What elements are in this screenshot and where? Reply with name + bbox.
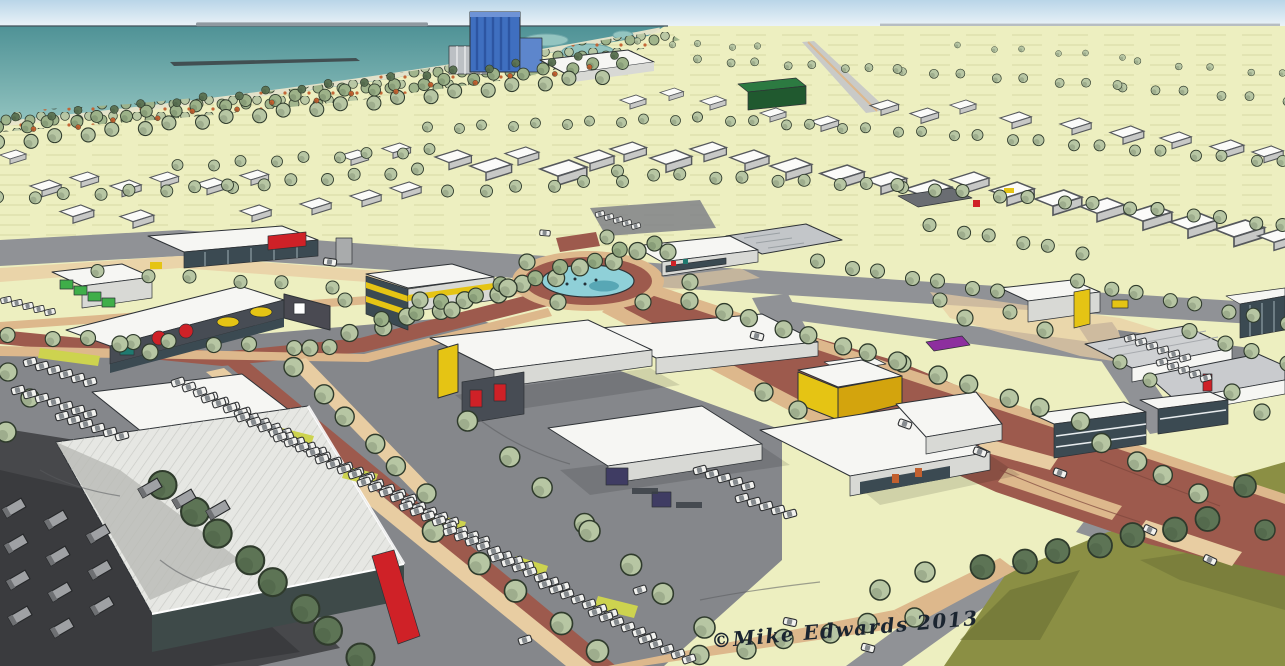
tree — [142, 270, 155, 283]
tree — [891, 179, 904, 192]
tree — [458, 411, 478, 431]
tree — [1222, 305, 1236, 319]
tree — [509, 122, 519, 132]
tree — [423, 72, 431, 80]
tree — [74, 106, 82, 114]
tree — [1179, 86, 1188, 95]
tree — [45, 332, 60, 347]
tree — [417, 484, 436, 503]
tree — [894, 127, 904, 137]
tree — [1188, 297, 1202, 311]
tree — [694, 55, 702, 63]
tree — [91, 110, 103, 122]
tree — [972, 130, 983, 141]
tree — [29, 192, 41, 204]
tree — [612, 242, 627, 257]
tree — [142, 344, 158, 360]
tree — [369, 84, 381, 96]
tree — [1187, 209, 1200, 222]
tree — [956, 69, 965, 78]
tree — [1120, 55, 1126, 61]
tree — [48, 112, 56, 120]
tree — [1151, 203, 1164, 216]
tree — [234, 275, 247, 288]
tree — [110, 118, 115, 123]
tree — [578, 175, 590, 187]
green-sign — [74, 286, 87, 295]
tree — [275, 276, 288, 289]
tree — [1059, 196, 1072, 209]
tree — [499, 279, 517, 297]
tree — [219, 109, 233, 123]
tree — [846, 262, 860, 276]
office-annex — [336, 238, 352, 264]
tree — [648, 169, 660, 181]
green-sign — [88, 292, 101, 301]
tree — [694, 40, 700, 46]
tree — [800, 327, 817, 344]
tree — [600, 230, 614, 244]
tree — [485, 65, 493, 73]
tree — [929, 366, 947, 384]
tree — [1276, 219, 1285, 232]
tree — [412, 292, 428, 308]
tree — [449, 66, 457, 74]
tree — [587, 640, 609, 662]
red-sign — [179, 324, 193, 338]
tree — [302, 340, 318, 356]
tree — [428, 82, 433, 87]
tree — [865, 64, 873, 72]
tree — [291, 595, 319, 623]
tree — [366, 434, 385, 453]
tree — [1088, 534, 1112, 558]
tree — [1072, 413, 1090, 431]
tree — [755, 383, 773, 401]
tree — [1277, 156, 1285, 167]
tree — [262, 86, 270, 94]
tree — [442, 185, 454, 197]
tree — [12, 113, 20, 121]
tree — [639, 114, 649, 124]
yellow-sign — [1112, 300, 1128, 308]
tree — [519, 254, 535, 270]
tree — [222, 179, 234, 191]
tree — [183, 270, 196, 283]
tree — [579, 521, 600, 542]
tree — [333, 97, 347, 111]
tree — [1003, 305, 1017, 319]
tree — [1191, 150, 1202, 161]
tree — [189, 181, 201, 193]
tree — [1019, 74, 1028, 83]
tree — [834, 178, 846, 190]
tree — [468, 288, 483, 303]
tree — [915, 562, 935, 582]
tree — [57, 188, 69, 200]
tree — [387, 73, 395, 81]
tree — [736, 171, 748, 183]
tree — [1019, 46, 1025, 52]
tree — [1214, 211, 1227, 224]
tree — [550, 294, 566, 310]
car — [323, 258, 337, 267]
yellow-sign — [217, 317, 239, 327]
tree — [123, 184, 135, 196]
tree — [538, 77, 552, 91]
tree — [360, 78, 368, 86]
tree — [341, 325, 358, 342]
tree — [1255, 520, 1275, 540]
tree — [21, 121, 33, 133]
tree — [811, 254, 825, 268]
tree — [553, 260, 568, 275]
tree — [647, 236, 662, 251]
tree — [1013, 550, 1037, 574]
tree — [338, 293, 352, 307]
car — [540, 230, 551, 236]
tree — [298, 152, 309, 163]
tree — [754, 43, 760, 49]
tree — [838, 124, 848, 134]
tree — [1244, 344, 1259, 359]
tree — [871, 264, 885, 278]
tree — [1175, 63, 1182, 70]
tree — [751, 58, 759, 66]
tree — [1046, 539, 1070, 563]
tree — [173, 99, 181, 107]
tree — [0, 363, 17, 381]
tree — [242, 337, 257, 352]
tree — [1055, 78, 1064, 87]
tree — [740, 310, 757, 327]
tree — [473, 80, 478, 85]
tree — [958, 226, 971, 239]
tree — [276, 103, 290, 117]
tree — [517, 68, 529, 80]
tree — [424, 90, 438, 104]
tree — [322, 340, 337, 355]
tree — [893, 65, 902, 74]
tree — [81, 128, 95, 142]
tree — [1041, 239, 1054, 252]
tree — [319, 89, 331, 101]
tree — [95, 188, 107, 200]
tree — [1129, 285, 1143, 299]
red-sign — [470, 390, 482, 407]
navy-sign — [652, 492, 671, 507]
tree — [1056, 51, 1062, 57]
tree — [386, 457, 405, 476]
tree — [682, 274, 698, 290]
tree — [438, 73, 450, 85]
tree — [1245, 92, 1254, 101]
tree — [956, 185, 969, 198]
tree — [199, 93, 207, 101]
tree — [162, 116, 176, 130]
green-sign — [60, 280, 73, 289]
tree — [716, 304, 733, 321]
tree — [957, 310, 973, 326]
tree — [693, 112, 703, 122]
tree — [681, 293, 698, 310]
tree — [0, 422, 16, 442]
red-sign — [494, 384, 506, 401]
tree — [669, 42, 675, 48]
tree — [322, 174, 334, 186]
tree — [1094, 140, 1105, 151]
tree — [310, 102, 324, 116]
tree — [1248, 69, 1255, 76]
tree — [1086, 197, 1099, 210]
tree — [1217, 91, 1226, 100]
tree — [1069, 140, 1080, 151]
tree — [992, 47, 998, 53]
tree — [671, 116, 681, 126]
tree — [510, 180, 522, 192]
orange-accent — [915, 468, 922, 477]
tree — [1105, 282, 1119, 296]
tree — [424, 144, 435, 155]
tree — [137, 100, 145, 108]
tree — [505, 580, 527, 602]
tree — [347, 644, 375, 666]
tree — [917, 126, 927, 136]
tree — [138, 122, 152, 136]
tree — [500, 447, 520, 467]
tree — [621, 554, 642, 575]
tree — [1083, 50, 1089, 56]
tree — [617, 58, 629, 70]
tree — [929, 184, 942, 197]
tree — [1163, 294, 1177, 308]
tree — [1246, 308, 1260, 322]
tree — [477, 120, 487, 130]
tree — [236, 546, 264, 574]
tree — [1250, 217, 1263, 230]
tree — [269, 100, 274, 105]
tree — [349, 91, 354, 96]
tree — [253, 109, 267, 123]
tree — [505, 78, 519, 92]
tree — [635, 294, 651, 310]
tree — [710, 172, 722, 184]
duck — [566, 283, 569, 286]
tree — [1121, 523, 1145, 547]
tree — [531, 118, 541, 128]
tree — [1163, 518, 1187, 542]
tree — [326, 281, 339, 294]
tree — [444, 302, 460, 318]
tree — [574, 52, 582, 60]
tree — [1252, 155, 1263, 166]
yellow-corner-tower — [438, 344, 458, 398]
tree — [528, 271, 543, 286]
tree — [611, 52, 619, 60]
tree — [749, 116, 759, 126]
tree — [931, 274, 945, 288]
tree — [258, 179, 270, 191]
tree — [551, 613, 573, 635]
tree — [285, 174, 297, 186]
tree — [172, 160, 183, 171]
tree — [1092, 434, 1111, 453]
tree — [971, 555, 995, 579]
tree — [155, 116, 160, 121]
yellow-sign — [150, 262, 162, 269]
tree — [367, 96, 381, 110]
tree — [1017, 237, 1030, 250]
masterplan-drawing: ©Mike Edwards 2013 — [0, 0, 1285, 666]
tree — [1134, 58, 1141, 65]
tree — [105, 122, 119, 136]
shopfront-sign — [683, 259, 688, 264]
canopy-bench — [632, 488, 658, 494]
tree — [423, 122, 433, 132]
tree — [1033, 135, 1044, 146]
tree — [24, 134, 38, 148]
tree — [784, 62, 792, 70]
tree — [634, 38, 640, 44]
tree — [1071, 274, 1085, 288]
tree — [507, 73, 512, 78]
tree — [1113, 355, 1127, 369]
tree — [923, 219, 936, 232]
tree — [861, 123, 871, 133]
tree — [571, 259, 588, 276]
tree — [841, 65, 849, 73]
tree — [315, 385, 334, 404]
orange-accent — [892, 474, 899, 483]
tree — [324, 79, 332, 87]
tree — [835, 338, 852, 355]
tree — [481, 185, 493, 197]
tree — [481, 83, 495, 97]
duck — [584, 283, 587, 286]
tree — [298, 85, 306, 93]
tree — [190, 109, 195, 114]
tree — [727, 59, 735, 67]
tree — [76, 124, 81, 129]
tree — [161, 334, 176, 349]
tree — [782, 120, 792, 130]
tree — [361, 148, 372, 159]
tree — [234, 107, 239, 112]
tree — [31, 126, 36, 131]
tree — [660, 244, 676, 260]
tree — [161, 185, 173, 197]
tree — [1196, 507, 1220, 531]
distant-headland — [196, 22, 428, 26]
tree — [314, 98, 319, 103]
tree — [1000, 389, 1018, 407]
tree — [284, 358, 303, 377]
tree — [1279, 70, 1285, 77]
tree — [1021, 191, 1034, 204]
tree — [960, 375, 978, 393]
tree — [587, 253, 602, 268]
tree — [272, 156, 283, 167]
tree — [808, 61, 816, 69]
tree — [1151, 86, 1160, 95]
distant-skyline — [880, 24, 1280, 26]
tree — [617, 118, 627, 128]
tree — [726, 116, 736, 126]
tree — [91, 265, 104, 278]
tree — [314, 617, 342, 645]
tree — [1076, 247, 1089, 260]
tree — [933, 293, 947, 307]
tree — [562, 71, 576, 85]
tree — [992, 74, 1001, 83]
tree — [1037, 322, 1053, 338]
tree — [789, 401, 807, 419]
tree — [1113, 81, 1122, 90]
tree — [1216, 150, 1227, 161]
tree — [585, 116, 595, 126]
tree — [1130, 145, 1141, 156]
tree — [1254, 404, 1270, 420]
tree — [110, 105, 118, 113]
tree — [385, 168, 397, 180]
tree — [1207, 64, 1214, 71]
tree — [469, 553, 491, 575]
white-logo-sign — [294, 303, 305, 314]
duck — [574, 278, 577, 281]
yellow-wall — [1074, 289, 1090, 328]
tree — [994, 190, 1007, 203]
tree — [204, 520, 232, 548]
tree — [335, 407, 354, 426]
tree — [596, 71, 610, 85]
tree — [1189, 484, 1208, 503]
shopfront-sign — [671, 261, 676, 266]
tree — [512, 59, 520, 67]
tree — [0, 328, 15, 343]
tree — [906, 272, 920, 286]
tree — [412, 163, 424, 175]
red-sign — [973, 200, 980, 207]
tree — [259, 568, 287, 596]
tree — [1143, 373, 1157, 387]
tree — [991, 284, 1005, 298]
tree — [112, 336, 128, 352]
tree — [889, 352, 907, 370]
canopy-bench — [676, 502, 702, 508]
aerial-illustration: ©Mike Edwards 2013 — [0, 0, 1285, 666]
tree — [1124, 202, 1137, 215]
tree — [729, 44, 735, 50]
tree — [1082, 78, 1091, 87]
tree — [393, 89, 398, 94]
tree — [1234, 475, 1256, 497]
tree — [549, 180, 561, 192]
tree — [966, 282, 980, 296]
tree — [1031, 398, 1049, 416]
tree — [629, 243, 646, 260]
tree — [548, 58, 556, 66]
tree — [48, 129, 62, 143]
tree — [1008, 135, 1019, 146]
yellow-sign — [250, 307, 272, 317]
tree — [587, 64, 592, 69]
tree — [1155, 145, 1166, 156]
tree — [206, 338, 221, 353]
navy-sign — [606, 468, 628, 485]
tree — [1182, 324, 1197, 339]
tree — [287, 341, 302, 356]
tree — [798, 174, 810, 186]
